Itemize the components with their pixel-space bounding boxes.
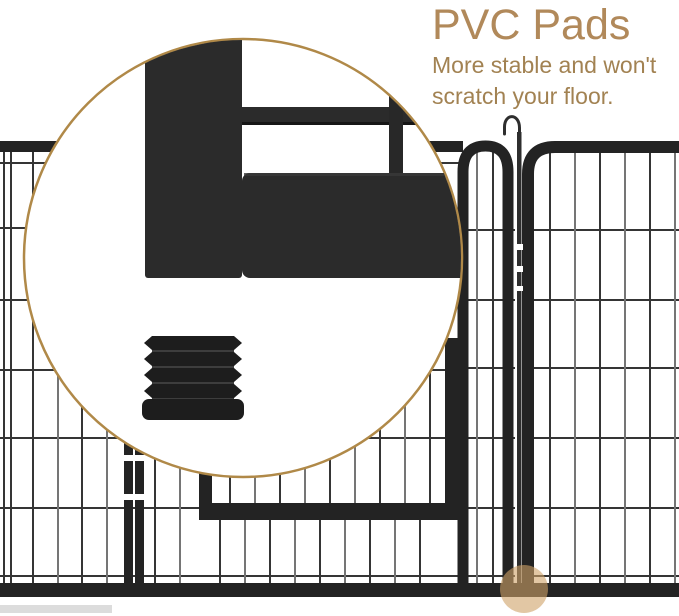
zoomed-frame-slab	[242, 173, 472, 278]
annotation-title: PVC Pads	[432, 0, 677, 50]
floor-shadow	[0, 605, 112, 613]
annotation-subtitle-line1: More stable and won't	[432, 50, 677, 81]
zoomed-frame-post	[145, 20, 242, 278]
pvc-pad-foot	[142, 399, 244, 420]
annotation-block: PVC Pads More stable and won't scratch y…	[432, 0, 677, 112]
fence-horizontal-wires-right	[466, 230, 679, 576]
pad-location-dot	[500, 565, 548, 613]
pvc-pad-detail	[142, 336, 244, 420]
fence-bottom-rail	[0, 583, 679, 597]
product-image: PVC Pads More stable and won't scratch y…	[0, 0, 679, 616]
zoomed-frame-slab-highlight	[244, 173, 470, 176]
annotation-subtitle-line2: scratch your floor.	[432, 81, 677, 112]
